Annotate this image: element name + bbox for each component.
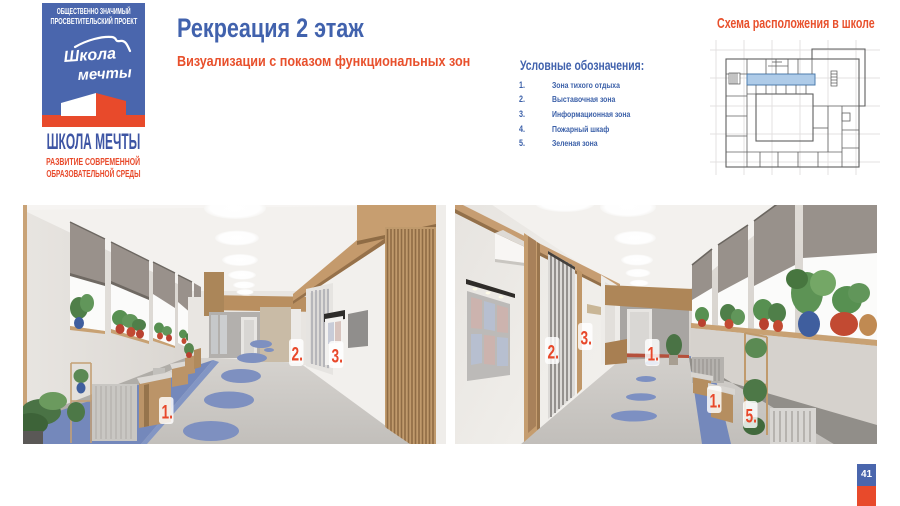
svg-text:2.: 2. [548, 341, 559, 363]
svg-text:2.: 2. [292, 343, 303, 365]
svg-text:мечты: мечты [77, 64, 132, 84]
svg-text:1.: 1. [710, 390, 721, 412]
svg-text:1.: 1. [162, 401, 173, 423]
svg-text:3.: 3. [581, 327, 592, 349]
svg-text:3.: 3. [332, 345, 343, 367]
svg-text:Школа: Школа [63, 45, 117, 66]
svg-text:1.: 1. [648, 343, 659, 365]
svg-text:5.: 5. [746, 405, 757, 427]
